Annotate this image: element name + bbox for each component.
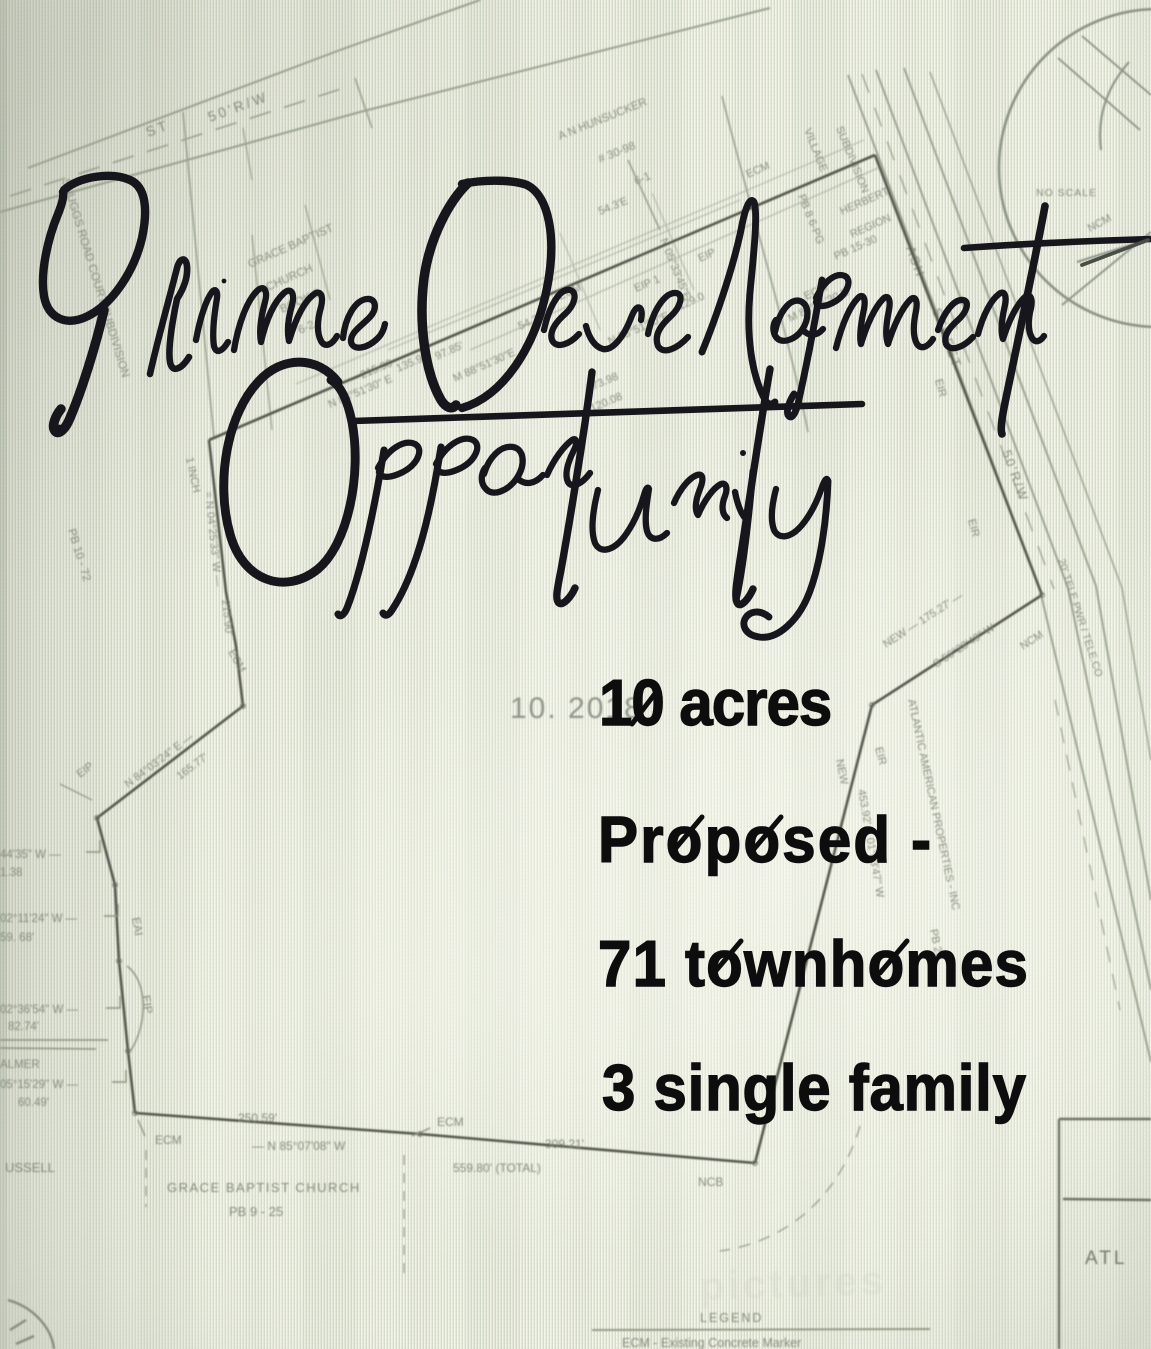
svg-text:59. 68': 59. 68' xyxy=(0,932,34,944)
svg-text:1.38: 1.38 xyxy=(0,867,22,879)
svg-text:pictures: pictures xyxy=(699,1258,888,1309)
svg-text:309.21': 309.21' xyxy=(545,1137,584,1151)
svg-text:60.49': 60.49' xyxy=(18,1097,49,1109)
svg-text:05°15'29" W —: 05°15'29" W — xyxy=(0,1079,78,1091)
svg-text:82.74': 82.74' xyxy=(8,1021,39,1033)
svg-text:ECM - Existing Concrete Marker: ECM - Existing Concrete Marker xyxy=(622,1336,801,1349)
svg-text:3 single family: 3 single family xyxy=(602,1052,1027,1125)
svg-text:NO SCALE: NO SCALE xyxy=(1036,187,1097,199)
svg-text:ECM: ECM xyxy=(437,1115,464,1129)
svg-text:GRACE BAPTIST CHURCH: GRACE BAPTIST CHURCH xyxy=(167,1180,361,1195)
svg-text:02°11'24" W —: 02°11'24" W — xyxy=(0,913,78,925)
svg-text:ALMER: ALMER xyxy=(0,1059,40,1071)
svg-text:NCB: NCB xyxy=(698,1175,723,1189)
svg-text:10 acres: 10 acres xyxy=(599,667,831,740)
svg-text:71 townhomes: 71 townhomes xyxy=(598,928,1029,1001)
svg-text:ATL: ATL xyxy=(1085,1248,1127,1269)
svg-text:02°36'54" W —: 02°36'54" W — xyxy=(0,1004,78,1016)
svg-text:ECM: ECM xyxy=(155,1133,182,1147)
svg-text:PB 9 - 25: PB 9 - 25 xyxy=(229,1204,283,1219)
svg-text:LEGEND: LEGEND xyxy=(700,1311,763,1325)
svg-text:USSELL: USSELL xyxy=(5,1160,55,1175)
svg-text:44'35" W —: 44'35" W — xyxy=(0,849,61,861)
svg-text:250.59': 250.59' xyxy=(238,1111,277,1125)
svg-text:— N 85°07'08" W: — N 85°07'08" W xyxy=(252,1139,346,1153)
svg-text:Proposed -: Proposed - xyxy=(598,804,933,877)
svg-text:559.80' (TOTAL): 559.80' (TOTAL) xyxy=(453,1161,541,1175)
